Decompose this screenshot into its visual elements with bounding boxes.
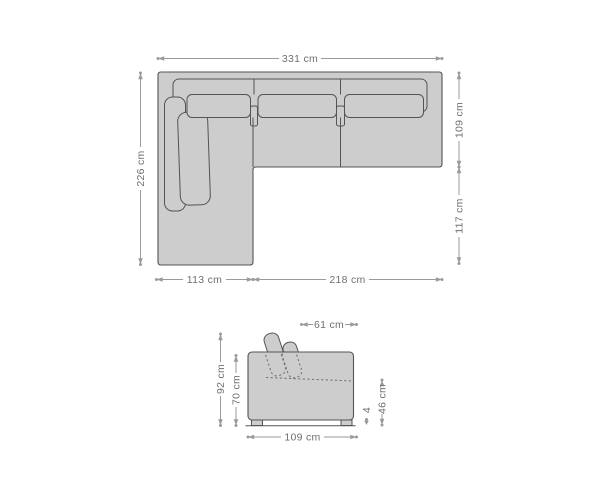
side-body bbox=[248, 352, 354, 420]
dimension-label-backrest-height: 70 cm bbox=[231, 375, 243, 405]
dimension-label-backrest-depth: 61 cm bbox=[314, 319, 344, 331]
dim-total-width: 331 cm bbox=[158, 53, 442, 65]
dimension-label-right-upper-depth: 109 cm bbox=[454, 102, 466, 138]
dimension-label-total-height: 92 cm bbox=[215, 364, 227, 394]
cushion-connector-left bbox=[251, 106, 258, 126]
dim-foot-height: 4 bbox=[361, 407, 373, 425]
dim-seat-width: 218 cm bbox=[253, 274, 442, 286]
dimension-label-right-lower-depth: 117 cm bbox=[454, 198, 466, 233]
foot-right bbox=[341, 420, 352, 426]
dimension-label-seat-height: 46 cm bbox=[377, 384, 389, 414]
foot-left bbox=[252, 420, 263, 426]
back-cushion-3 bbox=[345, 95, 424, 118]
back-cushion-1 bbox=[187, 95, 251, 118]
dimension-label-total-width: 331 cm bbox=[282, 53, 318, 65]
dim-total-height: 92 cm bbox=[215, 334, 227, 426]
side-view: 61 cm 92 cm 70 cm 46 cm 4 bbox=[215, 319, 389, 444]
dim-right-upper-depth: 109 cm bbox=[454, 73, 466, 167]
dimension-label-total-depth: 109 cm bbox=[284, 432, 320, 444]
chaise-cushion bbox=[177, 112, 210, 206]
dim-backrest-depth: 61 cm bbox=[302, 319, 357, 331]
dimension-label-chaise-width: 113 cm bbox=[187, 274, 222, 286]
dim-backrest-height: 70 cm bbox=[231, 356, 243, 426]
dim-seat-height: 46 cm bbox=[377, 380, 389, 425]
dimension-label-left-depth: 226 cm bbox=[135, 150, 147, 186]
dimension-label-seat-width: 218 cm bbox=[329, 274, 365, 286]
dim-right-lower-depth: 117 cm bbox=[454, 167, 466, 264]
sofa-dimension-diagram: 331 cm 226 cm 109 cm 117 cm 113 cm bbox=[0, 0, 600, 500]
top-view: 331 cm 226 cm 109 cm 117 cm 113 cm bbox=[135, 53, 466, 286]
dim-left-depth: 226 cm bbox=[135, 73, 147, 265]
back-cushion-2 bbox=[258, 95, 337, 118]
dim-chaise-width: 113 cm bbox=[157, 274, 254, 286]
dim-total-depth: 109 cm bbox=[248, 432, 357, 444]
dimension-label-foot-height: 4 bbox=[361, 407, 373, 413]
